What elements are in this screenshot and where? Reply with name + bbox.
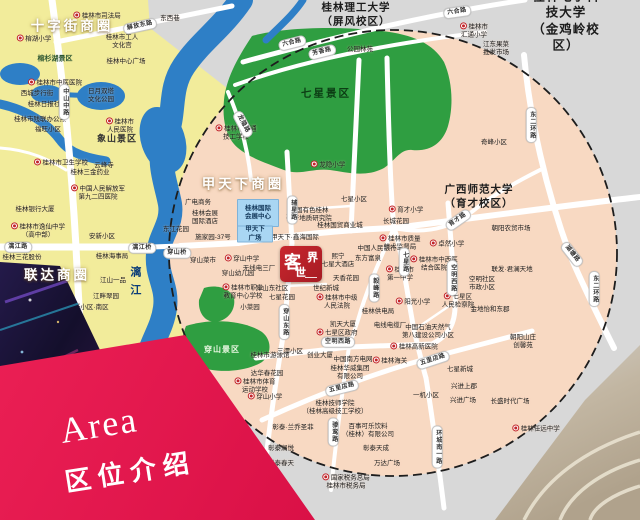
- keshijie-logo-marker: 客 界 世: [280, 246, 322, 282]
- logo-char-top-right: 界: [307, 249, 318, 265]
- logo-char-bottom: 世: [295, 264, 306, 280]
- location-map-slide: 桂林市司法局东西巷榕湖小学桂林市工人 文化宫桂林中心广场桂林市中医医院西城步行街…: [0, 0, 640, 520]
